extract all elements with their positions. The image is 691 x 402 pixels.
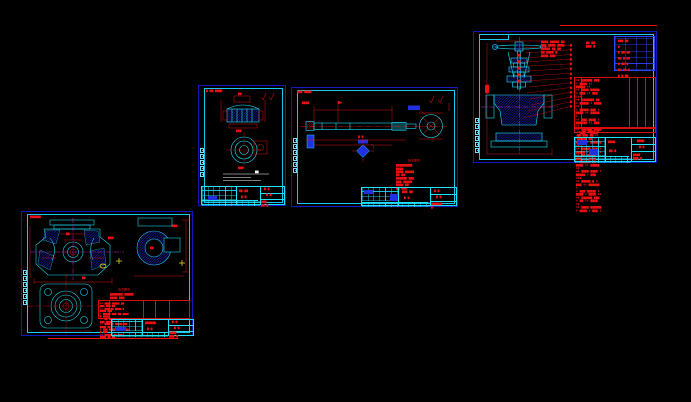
title-block-blue-cell <box>364 190 373 195</box>
title-block-divider <box>631 151 655 152</box>
margin-cell <box>23 300 27 305</box>
dim-tag: ▆▆▆ <box>108 236 113 240</box>
title-material: ▆ ▆ <box>404 196 409 200</box>
title-block-blue-cell <box>577 140 587 145</box>
margin-cell <box>200 166 204 171</box>
assembly-notes-side: ▆▆ ▆▆ ▆▆▆ ▆ <box>586 41 595 48</box>
title-field: ▆▆▆▆ <box>637 139 644 143</box>
sheet-corner-notch <box>479 34 509 40</box>
title-field: ▆:▆ <box>264 187 269 191</box>
margin-cell <box>293 144 297 149</box>
title-block-blue-cell <box>115 327 126 332</box>
margin-cell <box>23 288 27 293</box>
title-block-divider <box>260 193 285 194</box>
dim-tag: ▆▆ <box>82 276 86 280</box>
title-block-blue-cell <box>589 149 598 155</box>
margin-cell <box>200 154 204 159</box>
parameter-table: ▆▆▆ ▆▆ ▆ ▆ ▆▆ ▆▆ ▆▆ ▆ ▆▆ ▆ ▆▆ ▆ ▆▆ ▆▆ ▆ … <box>614 36 655 71</box>
table-col-line <box>169 301 170 318</box>
margin-cell <box>293 150 297 155</box>
assembly-notes: ▆▆▆▆ ▆▆▆▆▆ ▆▆ ▆▆▆ ▆▆▆▆ ▆▆▆▆ ▆▆▆▆▆ ▆▆ ▆▆ … <box>541 40 564 58</box>
title-scale: ▆ ▆ <box>436 195 441 199</box>
margin-cell <box>475 148 479 153</box>
title-material: ▆ ▆ <box>241 195 246 199</box>
margin-cell <box>293 138 297 143</box>
title-product: ▆▆▆▆ <box>608 140 615 144</box>
margin-cell <box>293 162 297 167</box>
title-block-bottom-cells <box>575 157 631 163</box>
notes-title: 技术要求 <box>118 288 130 292</box>
margin-cell <box>23 294 27 299</box>
section-tag: ▆-▆ <box>358 135 363 139</box>
stem-dim-tag: ▆▆▆▆ <box>302 101 309 105</box>
margin-cell <box>200 148 204 153</box>
bom-col-line <box>645 78 646 127</box>
dim-tag: ▆▆ <box>150 246 154 250</box>
margin-cell <box>200 160 204 165</box>
margin-cell <box>23 282 27 287</box>
title-material: ▆ ▆ <box>147 327 152 331</box>
title-field: ▆:▆ <box>434 189 439 193</box>
title-block: ▆▆▆ ▆▆ ▆ ▆ ▆:▆ ▆ ▆ ▆▆▆▆▆▆-▆ <box>361 187 457 207</box>
margin-cell <box>23 270 27 275</box>
margin-cell <box>475 142 479 147</box>
corner-tag: ▆-▆▆-▆▆▆▆ <box>206 89 222 93</box>
balloon-number-column: ▆ ▆ ▆ ▆ ▆ ▆ ▆ ▆ ▆ ▆ ▆ ▆ ▆ ▆ <box>570 43 572 109</box>
title-scale: ▆ ▆ <box>266 193 271 197</box>
table-col-line <box>143 301 144 318</box>
bom-header-row: ▮▮ ▆▆ ▆▆▆▆ ▆ ▆▆ ▆▆▆ ▆▆ ▮▮ ▆▆ <box>574 128 656 134</box>
margin-cell <box>475 124 479 129</box>
assembly-top-red-line <box>560 25 657 26</box>
title-drawing-number: ▆▆▆▆▆▆-▆ <box>431 202 444 209</box>
sheet-stem-drawing[interactable]: ▆▆▆-▆▆▆▆ ▆▆▆▆ ▆-▆ <box>291 87 458 207</box>
sheet-body-drawing[interactable]: ▆▆▆▆▆▆ ▆▆ ▆▆▆ ▆▆ ▆▆▆ ▆▆ <box>21 211 193 336</box>
dim-tag: ▆▆▆ <box>172 224 177 228</box>
title-field: ▆:▆ <box>172 320 177 324</box>
parameter-table-text: ▆▆▆ ▆▆ ▆ ▆ ▆▆ ▆▆ ▆▆ ▆ ▆▆ ▆ ▆▆ ▆ ▆▆ ▆▆ ▆ … <box>618 38 630 79</box>
margin-cell <box>23 276 27 281</box>
title-block-divider <box>168 325 193 326</box>
sheet-assembly-drawing[interactable]: ▆ ▆ ▆ ▆ ▆ ▆ ▆ ▆ ▆ ▆ ▆ ▆ ▆ ▆ ▆▆▆▆ ▆▆▆▆▆ ▆… <box>473 31 657 163</box>
sheet-gland-drawing[interactable]: ▆-▆▆-▆▆▆▆ <box>198 85 286 206</box>
title-block-divider <box>631 138 632 161</box>
notes-lines: ▆▆▆▆▆▆▆ ▆▆▆▆▆ ▆▆▆▆ ▆▆▆ <box>110 293 133 300</box>
circle-view-label: ▆▆▆ <box>238 166 243 170</box>
title-drawing-number: ▆▆▆▆-▆▆▆-▆ <box>169 331 178 338</box>
title-block-bottom-cells <box>112 332 168 337</box>
margin-cell <box>475 130 479 135</box>
cad-model-space: ▆ ▆ ▆ ▆ ▆ ▆ ▆ ▆ ▆ ▆ ▆ ▆ ▆ ▆ ▆▆▆▆ ▆▆▆▆▆ ▆… <box>0 0 691 402</box>
bom-table: ▮▮ ▆▆▆▆▆▆ ▆▆▆ ▮ ▆▆▆▆ ▮▮ ▆▆▆▆▆ ▮▮ ▮▮ ▆▆▆▆… <box>574 77 656 128</box>
notes-title: 技术要求 <box>408 159 420 163</box>
title-block: ▆▆▆▆ ▆▆ ▆ ▆▆▆▆ ▆:▆ ▆▆▆▆-▆▆▆-▆ <box>574 137 656 162</box>
margin-cell <box>475 118 479 123</box>
title-scale: ▆ ▆ <box>174 326 179 330</box>
title-scale: ▆:▆ <box>639 145 644 149</box>
title-block-bottom-cells <box>202 201 260 206</box>
title-block-divider <box>430 194 456 195</box>
title-product: ▆▆▆▆▆▆ <box>145 321 156 325</box>
title-block: ▆▆▆▆▆▆ ▆ ▆ ▆:▆ ▆ ▆ ▆▆▆▆-▆▆▆-▆ <box>111 319 194 336</box>
title-drawing-number: ▆▆▆-▆▆-▆ <box>261 200 269 207</box>
title-product: ▆▆▆ ▆▆ <box>402 190 413 194</box>
table-col-line <box>155 301 156 318</box>
title-block-blue-cell <box>390 194 398 201</box>
title-block: ▆▆ ▆▆ ▆ ▆ ▆:▆ ▆ ▆ ▆▆▆-▆▆-▆ <box>201 186 286 205</box>
title-drawing-number: ▆▆▆▆-▆▆▆-▆ <box>633 153 642 160</box>
white-note-label: ▆▆ <box>255 170 259 174</box>
bom-col-line <box>637 78 638 127</box>
dim-tag: ▆▆ <box>66 232 70 236</box>
title-block-bottom-cells <box>362 202 430 207</box>
margin-cell <box>475 136 479 141</box>
title-product: ▆▆ ▆▆ <box>239 189 248 193</box>
corner-tag: ▆▆▆▆▆▆ <box>30 215 41 219</box>
margin-cell <box>293 168 297 173</box>
margin-cell <box>293 156 297 161</box>
body-data-table: ▮▮ ▆▆▆▆ ▆▆▆▆▆ ▆▆ ▆▆▆ ▆▆▆ ▆▆ ▮▮ ▆▆▆ ▆▆ ▆▆… <box>98 300 190 319</box>
top-view-label: ▆▆▆ <box>236 129 241 133</box>
bom-col-line <box>629 78 630 127</box>
corner-tag: ▆▆▆-▆▆▆▆ <box>297 90 311 94</box>
title-material: ▆▆ ▆ <box>609 149 616 153</box>
top-view-dim-label: ▆▆ <box>238 92 242 96</box>
margin-cell <box>200 172 204 177</box>
